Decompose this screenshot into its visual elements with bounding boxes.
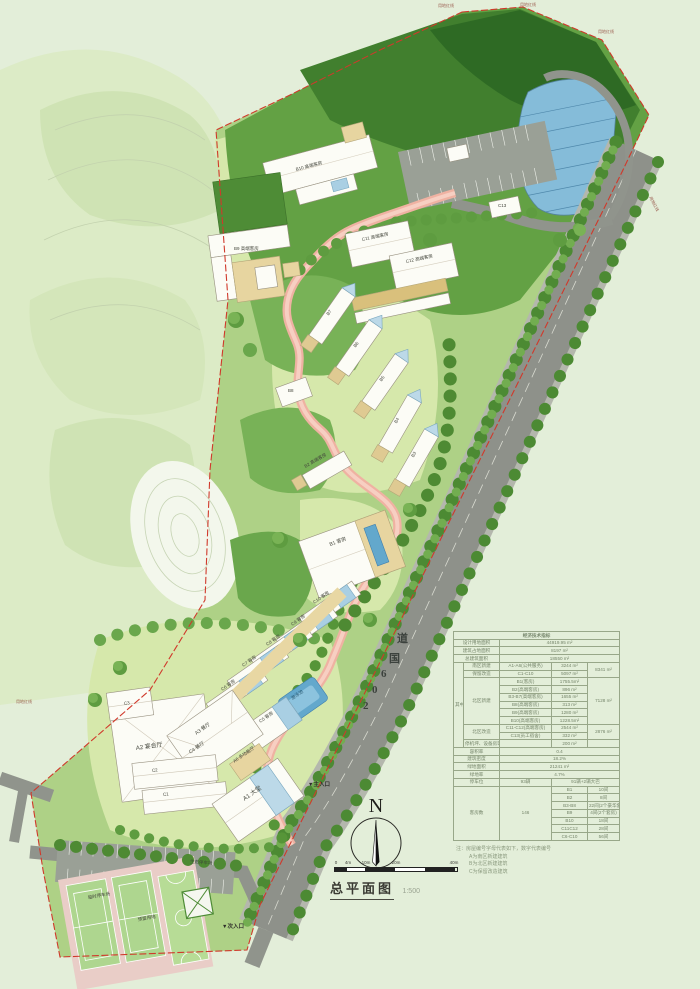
- table-cell: 200 m²: [552, 740, 588, 748]
- scale-bar-segments: [334, 867, 458, 872]
- table-cell: 7128 m²: [588, 678, 620, 724]
- table-cell: 南区新建: [464, 662, 500, 670]
- north-letter: N: [348, 796, 404, 816]
- table-cell: 容积率: [454, 748, 500, 756]
- table-cell: 18550 m²: [500, 655, 620, 663]
- table-cell: 1228.5m²: [552, 717, 588, 725]
- table-cell: C13(员工宿舍): [500, 732, 552, 740]
- label-boundary-1: 用地红线: [438, 4, 454, 8]
- label-road-char-2: 2: [363, 700, 369, 712]
- table-cell: 绿地面积: [454, 763, 500, 771]
- table-cell: 其中: [454, 662, 464, 747]
- table-cell: 3244 m²: [552, 662, 588, 670]
- scale-tick-20: 20m: [392, 860, 401, 865]
- drawing-title: 总平面图: [330, 878, 394, 900]
- table-cell: [588, 740, 620, 748]
- table-cell: 8间: [588, 794, 620, 802]
- table-cell: B9: [552, 809, 588, 817]
- table-cell: B10: [552, 817, 588, 825]
- table-cell: 建筑占地面积: [454, 647, 500, 655]
- label-road-char-guo: 国: [389, 650, 400, 666]
- note-line: B为北区新建建筑: [456, 861, 551, 869]
- table-cell: 896 m²: [552, 686, 588, 694]
- table-cell: C6-C10: [552, 833, 588, 841]
- table-cell: B2: [552, 794, 588, 802]
- scale-tick-10: 10m: [362, 860, 371, 865]
- table-cell: 4.7%: [500, 771, 620, 779]
- table-cell: A1-A6(公共服务): [500, 662, 552, 670]
- sports-courts: [58, 856, 213, 989]
- scale-tick-0: 0: [335, 860, 338, 865]
- table-cell: 北区改造: [464, 724, 500, 739]
- table-cell: 18.2%: [500, 755, 620, 763]
- table-cell: 313 m²: [552, 701, 588, 709]
- note-line: 注：房屋编号字母代表如下，数字代表编号: [456, 846, 551, 854]
- helipad: [182, 887, 213, 918]
- title-block: 总平面图 1:500: [330, 878, 420, 900]
- table-cell: 44919.95 m²: [500, 639, 620, 647]
- table-cell: 保留改造: [464, 670, 500, 678]
- note-line: C为保留改造建筑: [456, 869, 551, 877]
- scale-bar: 0 4m 10m 20m 40m: [334, 860, 458, 876]
- table-cell: 8197 m²: [500, 647, 620, 655]
- table-cell: 1280 m²: [552, 709, 588, 717]
- table-cell: 8341 m²: [588, 662, 620, 677]
- label-building-b8: B8: [288, 389, 294, 394]
- table-cell: B1(客房): [500, 678, 552, 686]
- table-title: 经济技术指标: [454, 632, 620, 640]
- table-cell: 18间: [588, 817, 620, 825]
- table-cell: B3-B8: [552, 802, 588, 810]
- table-cell: 56间: [588, 833, 620, 841]
- table-cell: 绿地率: [454, 771, 500, 779]
- table-cell: 建筑密度: [454, 755, 500, 763]
- table-cell: 332 m²: [552, 732, 588, 740]
- table-cell: 21241 m²: [500, 763, 620, 771]
- drawing-scale: 1:500: [402, 888, 420, 895]
- legend-notes: 注：房屋编号字母代表如下，数字代表编号 A为南区新建建筑 B为北区新建建筑 C为…: [456, 846, 551, 876]
- table-cell: 91辆+2辆大巴: [552, 778, 620, 786]
- table-cell: B9(高端客房): [500, 709, 552, 717]
- label-building-c3: C3: [124, 701, 130, 706]
- label-boundary-3: 用地红线: [598, 30, 614, 34]
- label-road-char-dao: 道: [397, 630, 408, 646]
- table-cell: 4间(2个套房): [588, 809, 620, 817]
- label-building-c1: C1: [163, 792, 169, 797]
- table-cell: 停机坪、设备房等: [464, 740, 500, 748]
- note-line: A为南区新建建筑: [456, 854, 551, 862]
- table-cell: 停车位: [454, 778, 500, 786]
- table-cell: 0.4: [500, 748, 620, 756]
- table-cell: 10间: [588, 786, 620, 794]
- table-cell: 146: [500, 786, 552, 840]
- label-building-c13: C13: [498, 204, 506, 209]
- table-cell: 5097 m²: [552, 670, 588, 678]
- label-building-b9: B9 高端客房: [234, 247, 259, 252]
- table-cell: 1755.5m²: [552, 678, 588, 686]
- table-cell: C1-C10: [500, 670, 552, 678]
- table-cell: B10(高端客房): [500, 717, 552, 725]
- table-cell: 设计用地面积: [454, 639, 500, 647]
- table-cell: B1: [552, 786, 588, 794]
- label-boundary-2: 用地红线: [520, 3, 536, 7]
- label-building-c2: C2: [152, 768, 158, 773]
- table-cell: 总建筑面积: [454, 655, 500, 663]
- green-field: [213, 173, 288, 234]
- label-boundary-5: 用地红线: [16, 700, 32, 704]
- table-cell: 客房数: [454, 786, 500, 840]
- label-road-char-0: 0: [372, 684, 378, 696]
- economic-indicator-table: 经济技术指标 设计用地面积44919.95 m² 建筑占地面积8197 m² 总…: [453, 631, 620, 841]
- table-cell: [500, 740, 552, 748]
- table-cell: B8(高端客房): [500, 701, 552, 709]
- table-cell: 2544 m²: [552, 724, 588, 732]
- table-cell: 22间(2个豪华套间): [588, 802, 620, 810]
- label-secondary-entrance: ▼次入口: [222, 922, 244, 930]
- table-cell: B2(高端客房): [500, 686, 552, 694]
- table-cell: 28间: [588, 825, 620, 833]
- site-plan-canvas: B10 高端客房 B9 高端客房 C11 高端客房 C12 高端客房 C13 B…: [0, 0, 700, 989]
- table-cell: C11C12: [552, 825, 588, 833]
- table-cell: B3-B7(高端客房): [500, 693, 552, 701]
- label-main-entrance: ▼主入口: [308, 780, 330, 788]
- table-cell: 2876 m²: [588, 724, 620, 739]
- table-cell: 93辆: [500, 778, 552, 786]
- label-road-char-6: 6: [381, 668, 387, 680]
- table-cell: 北区新建: [464, 678, 500, 724]
- table-cell: 1655 m²: [552, 693, 588, 701]
- table-cell: C11-C12(高端客房): [500, 724, 552, 732]
- scale-tick-4: 4m: [345, 860, 351, 865]
